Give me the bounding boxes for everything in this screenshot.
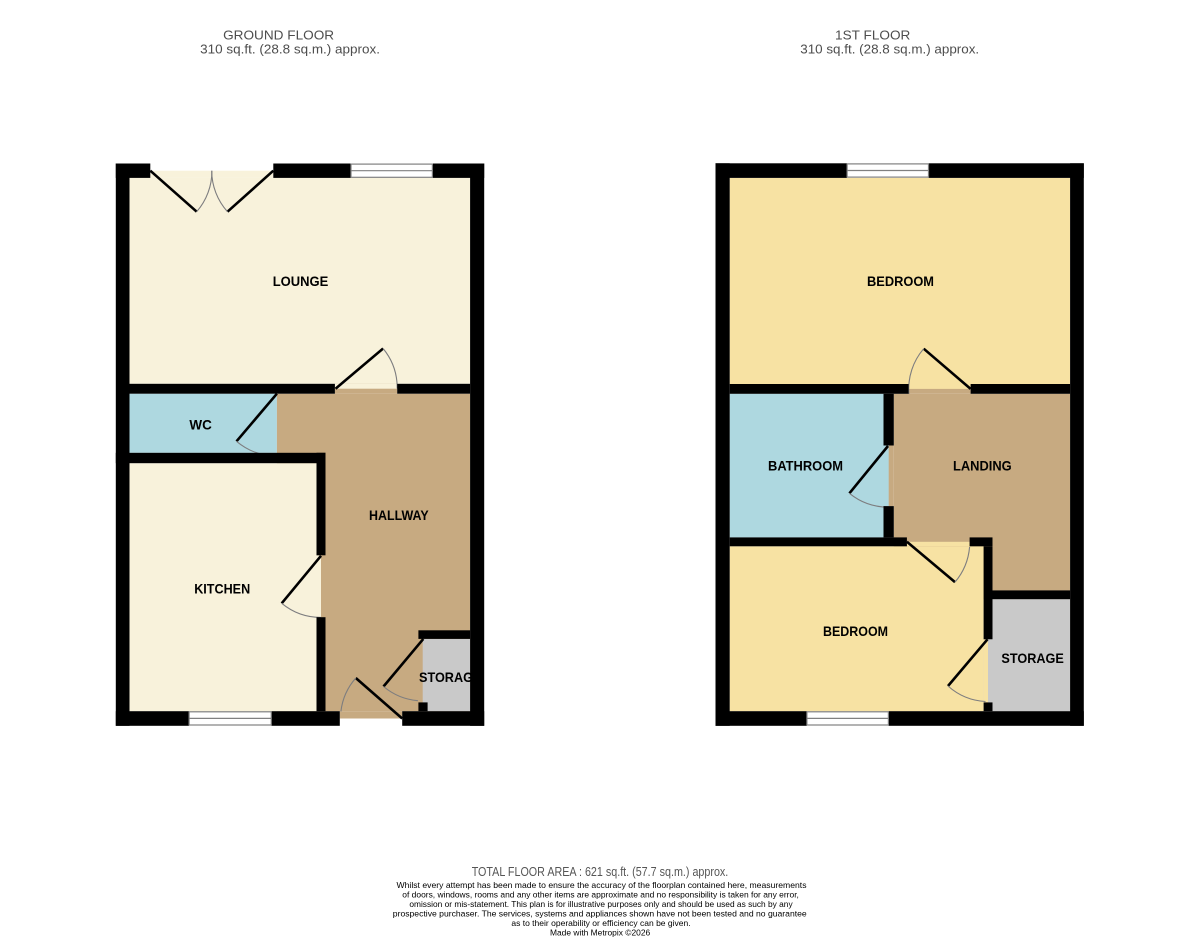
svg-text:Made with Metropix ©2026: Made with Metropix ©2026 [550,928,650,938]
svg-text:KITCHEN: KITCHEN [194,581,250,597]
svg-text:310 sq.ft. (28.8 sq.m.) approx: 310 sq.ft. (28.8 sq.m.) approx. [800,42,979,56]
svg-text:BATHROOM: BATHROOM [768,457,843,473]
svg-text:WC: WC [189,416,211,432]
svg-text:STORAGE: STORAGE [419,669,481,685]
svg-text:1ST FLOOR: 1ST FLOOR [835,29,910,43]
svg-text:as to their operability or eff: as to their operability or efficiency ca… [511,918,690,928]
svg-text:of doors, windows, rooms and a: of doors, windows, rooms and any other i… [402,890,799,900]
svg-text:TOTAL FLOOR AREA : 621 sq.ft.: TOTAL FLOOR AREA : 621 sq.ft. (57.7 sq.m… [472,864,729,879]
svg-text:STORAGE: STORAGE [1001,650,1063,666]
svg-text:GROUND FLOOR: GROUND FLOOR [223,29,334,43]
svg-text:omission or mis-statement. Thi: omission or mis-statement. This plan is … [409,899,793,909]
svg-text:310 sq.ft. (28.8 sq.m.) approx: 310 sq.ft. (28.8 sq.m.) approx. [200,42,380,56]
svg-text:prospective purchaser. The ser: prospective purchaser. The services, sys… [393,909,807,919]
svg-text:LOUNGE: LOUNGE [273,273,329,289]
svg-text:LANDING: LANDING [953,457,1012,473]
svg-text:Whilst every attempt has been: Whilst every attempt has been made to en… [397,880,807,890]
svg-text:BEDROOM: BEDROOM [823,623,888,639]
svg-text:BEDROOM: BEDROOM [867,273,934,289]
svg-text:HALLWAY: HALLWAY [369,507,429,523]
